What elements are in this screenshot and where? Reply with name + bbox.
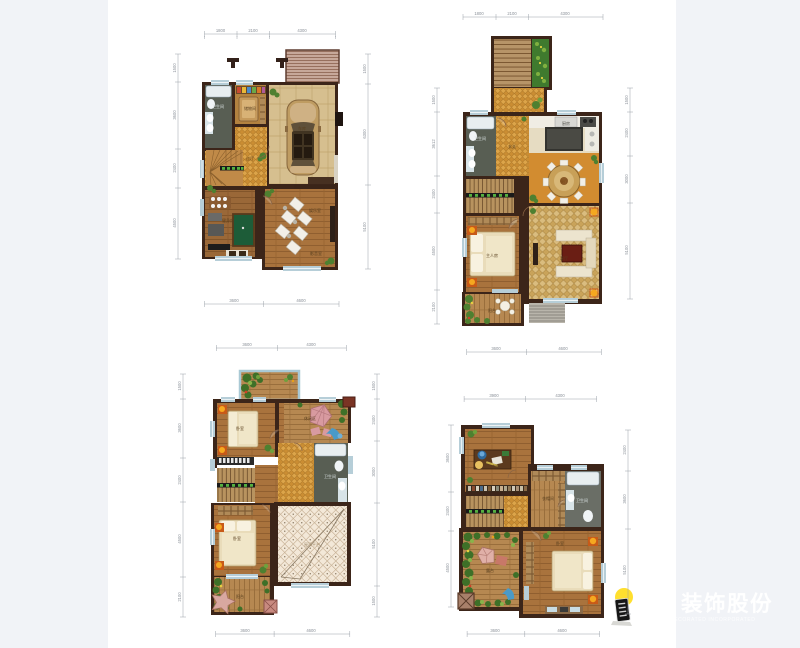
svg-text:2400: 2400 (177, 475, 182, 485)
svg-text:露台: 露台 (486, 567, 494, 573)
svg-text:厨房: 厨房 (562, 120, 570, 126)
svg-text:卫生间: 卫生间 (212, 103, 224, 109)
svg-text:4300: 4300 (297, 28, 307, 33)
svg-text:5100: 5100 (622, 565, 627, 575)
svg-text:3600: 3600 (172, 110, 177, 120)
svg-text:3600: 3600 (240, 628, 250, 633)
svg-text:卫生间: 卫生间 (576, 497, 588, 503)
svg-text:3000: 3000 (624, 174, 629, 184)
svg-text:娱乐室: 娱乐室 (309, 207, 321, 213)
svg-text:4300: 4300 (555, 393, 565, 398)
svg-text:装饰股份: 装饰股份 (681, 591, 773, 616)
svg-text:3900: 3900 (489, 393, 499, 398)
svg-text:4500: 4500 (431, 246, 436, 256)
svg-text:2400: 2400 (624, 128, 629, 138)
svg-text:书房: 书房 (492, 463, 500, 469)
svg-text:1500: 1500 (431, 95, 436, 105)
svg-text:1800: 1800 (216, 28, 226, 33)
svg-text:3600: 3600 (622, 494, 627, 504)
svg-text:5100: 5100 (624, 245, 629, 255)
svg-text:4500: 4500 (445, 563, 450, 573)
svg-text:2100: 2100 (248, 28, 258, 33)
svg-text:2400: 2400 (622, 445, 627, 455)
svg-text:1500: 1500 (371, 596, 376, 606)
svg-text:储物间: 储物间 (244, 105, 256, 111)
svg-text:餐厅: 餐厅 (560, 178, 568, 184)
svg-text:1500: 1500 (371, 381, 376, 391)
svg-text:3000: 3000 (371, 467, 376, 477)
svg-text:2100: 2100 (177, 592, 182, 602)
svg-text:2400: 2400 (371, 415, 376, 425)
svg-text:卫生间: 卫生间 (474, 135, 486, 141)
svg-text:2100: 2100 (507, 11, 517, 16)
svg-text:影音室: 影音室 (310, 250, 322, 256)
svg-text:3612: 3612 (431, 139, 436, 149)
svg-text:3600: 3600 (229, 298, 239, 303)
svg-text:车库: 车库 (298, 125, 306, 131)
svg-text:3600: 3600 (177, 423, 182, 433)
svg-text:4500: 4500 (177, 534, 182, 544)
svg-text:阳台: 阳台 (236, 593, 244, 599)
svg-text:4600: 4600 (296, 298, 306, 303)
svg-text:衣帽间: 衣帽间 (542, 495, 554, 501)
svg-text:4600: 4600 (306, 628, 316, 633)
svg-text:5100: 5100 (362, 222, 367, 232)
svg-text:5100: 5100 (371, 539, 376, 549)
svg-text:2100: 2100 (431, 302, 436, 312)
svg-text:主人房: 主人房 (486, 252, 498, 258)
svg-text:2400: 2400 (431, 189, 436, 199)
svg-text:2400: 2400 (445, 506, 450, 516)
svg-text:玄关: 玄关 (508, 143, 516, 149)
svg-text:过厅: 过厅 (246, 155, 254, 161)
svg-text:1500: 1500 (362, 64, 367, 74)
svg-text:休闲区: 休闲区 (304, 415, 316, 421)
svg-text:3600: 3600 (490, 628, 500, 633)
svg-text:4600: 4600 (557, 628, 567, 633)
svg-text:4600: 4600 (558, 346, 568, 351)
svg-text:DECORATED INCORPORATED: DECORATED INCORPORATED (670, 617, 756, 623)
svg-text:4300: 4300 (560, 11, 570, 16)
svg-text:4500: 4500 (172, 218, 177, 228)
svg-text:1500: 1500 (172, 63, 177, 73)
svg-text:卧室: 卧室 (556, 540, 564, 546)
svg-text:卫生间: 卫生间 (324, 473, 336, 479)
svg-text:3600: 3600 (445, 453, 450, 463)
svg-text:1500: 1500 (624, 95, 629, 105)
svg-text:3600: 3600 (242, 342, 252, 347)
svg-text:阳台: 阳台 (488, 307, 496, 313)
svg-text:卧室: 卧室 (233, 535, 241, 541)
svg-text:2400: 2400 (172, 163, 177, 173)
svg-text:客厅: 客厅 (560, 255, 568, 261)
svg-text:健身房: 健身房 (222, 217, 234, 223)
svg-text:屋顶平台: 屋顶平台 (304, 541, 320, 547)
svg-text:卧室: 卧室 (236, 425, 244, 431)
svg-text:3600: 3600 (491, 346, 501, 351)
svg-text:4300: 4300 (306, 342, 316, 347)
svg-text:1500: 1500 (177, 381, 182, 391)
svg-text:6300: 6300 (362, 129, 367, 139)
svg-text:1800: 1800 (474, 11, 484, 16)
